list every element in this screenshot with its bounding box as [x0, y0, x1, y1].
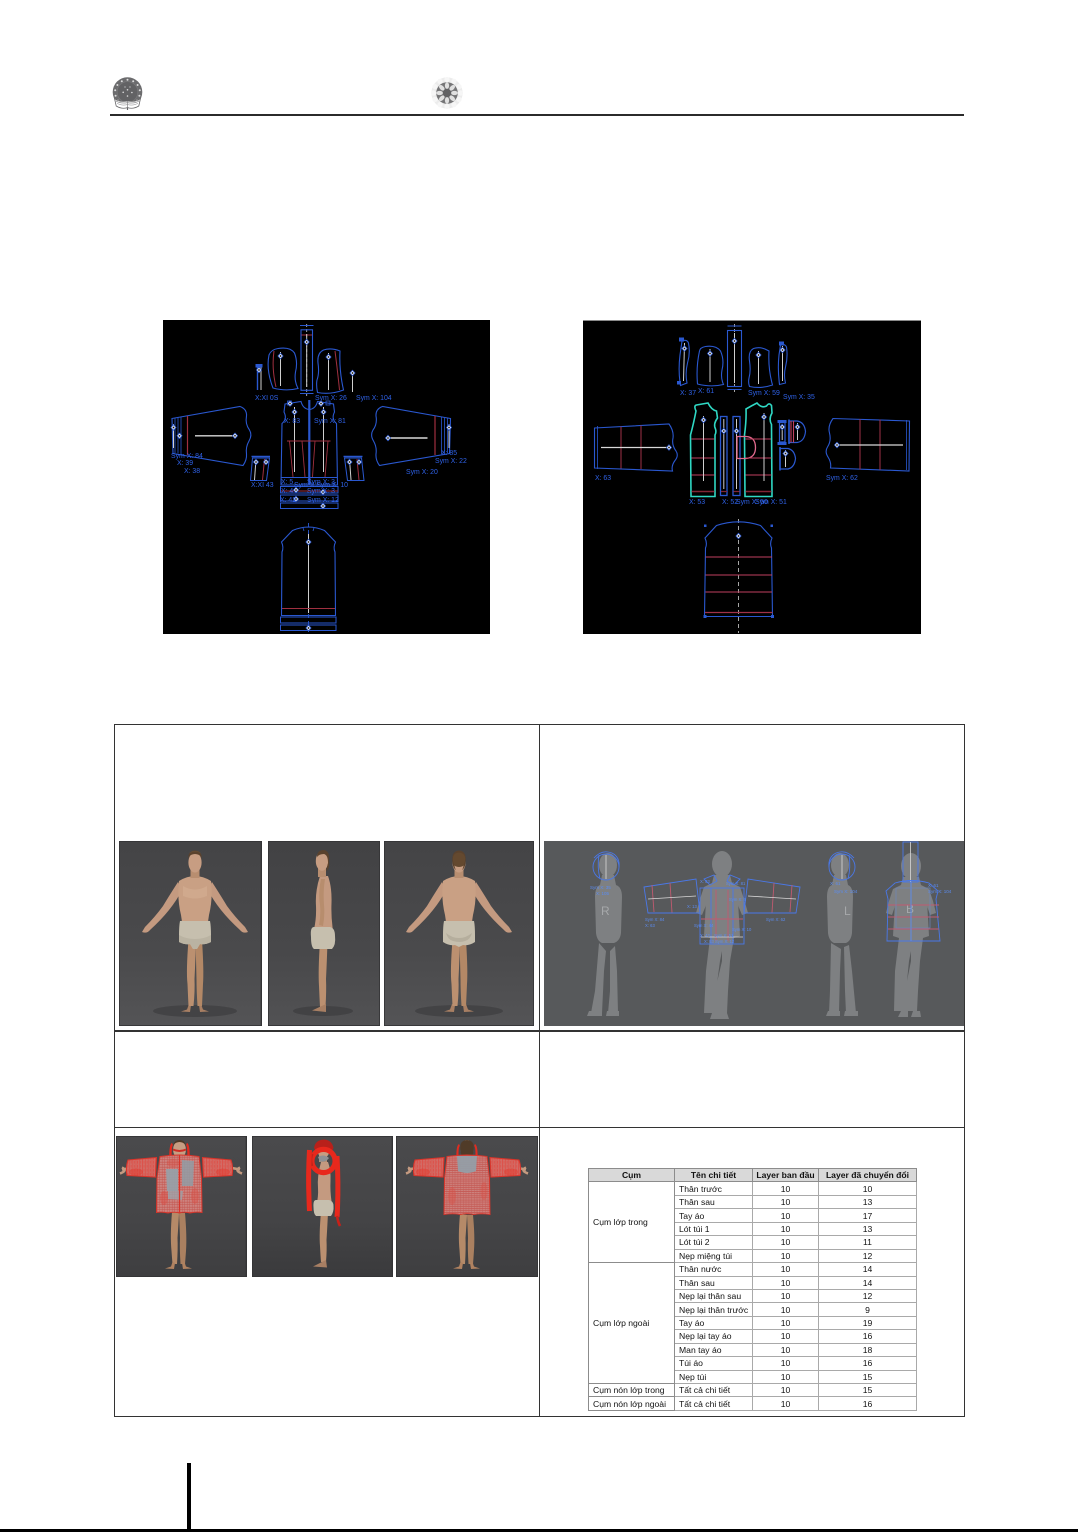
- svg-text:B: B: [906, 902, 914, 916]
- svg-text:Sym X: 44: Sym X: 44: [694, 923, 714, 928]
- svg-text:X: 63: X: 63: [645, 923, 655, 928]
- svg-text:Sym X: 35: Sym X: 35: [590, 885, 611, 890]
- svg-text:Sym X: 35: Sym X: 35: [783, 394, 815, 401]
- svg-text:X: 83: X: 83: [700, 879, 710, 884]
- svg-text:Sym X.Sym X: 10: Sym X.Sym X: 10: [294, 482, 348, 489]
- svg-text:X: 38: X: 38: [184, 468, 200, 475]
- svg-text:L: L: [844, 904, 851, 918]
- svg-text:X: 85: X: 85: [441, 450, 457, 457]
- svg-text:Sym X: 84: Sym X: 84: [645, 917, 665, 922]
- svg-text:Sym X: 20: Sym X: 20: [406, 469, 438, 476]
- svg-text:X: 37: X: 37: [680, 390, 696, 397]
- svg-text:Sym X: 59: Sym X: 59: [748, 390, 780, 397]
- svg-text:X: 61: X: 61: [698, 388, 714, 395]
- svg-text:Sym X: 62: Sym X: 62: [826, 475, 858, 482]
- svg-text:X: 53: X: 53: [689, 499, 705, 506]
- svg-text:X: 61: X: 61: [928, 883, 939, 888]
- svg-text:Sym X: 9: Sym X: 9: [729, 897, 747, 902]
- svg-text:X: 83: X: 83: [284, 418, 300, 425]
- svg-text:X: 61: X: 61: [830, 881, 841, 886]
- svg-text:X: 105: X: 105: [596, 891, 610, 896]
- svg-text:X: 42: X: 42: [700, 933, 710, 938]
- svg-text:X:XI 0S: X:XI 0S: [255, 395, 279, 402]
- svg-text:Sym X: 22: Sym X: 22: [435, 458, 467, 465]
- svg-text:Sym X: 81: Sym X: 81: [726, 881, 746, 886]
- svg-text:X: 63: X: 63: [595, 475, 611, 482]
- svg-text:Sym X: 51: Sym X: 51: [714, 933, 734, 938]
- svg-text:Sym X: 62: Sym X: 62: [766, 917, 786, 922]
- svg-text:X: 42: X: 42: [280, 497, 296, 504]
- svg-text:Sym X: 104: Sym X: 104: [834, 889, 858, 894]
- svg-text:Sym X: 51: Sym X: 51: [755, 499, 787, 506]
- svg-text:X: 4: X: 4: [281, 488, 293, 495]
- svg-text:X: 39: X: 39: [177, 460, 193, 467]
- svg-text:Sym X: 10: Sym X: 10: [732, 927, 752, 932]
- svg-text:Sym X: 26: Sym X: 26: [315, 395, 347, 402]
- svg-text:X:XI 43: X:XI 43: [251, 482, 274, 489]
- svg-text:Sym X: 3: Sym X: 3: [307, 488, 335, 495]
- svg-text:Sym X: 12: Sym X: 12: [307, 497, 339, 504]
- svg-text:Sym X: 104: Sym X: 104: [928, 889, 952, 894]
- svg-text:X: 13: X: 13: [687, 904, 697, 909]
- svg-text:R: R: [601, 904, 610, 918]
- svg-text:X: 5: X: 5: [281, 479, 293, 486]
- svg-text:Sym X: 84: Sym X: 84: [171, 453, 203, 460]
- svg-text:Sym X: 81: Sym X: 81: [314, 418, 346, 425]
- svg-text:X: 53 Sym X: 12: X: 53 Sym X: 12: [704, 939, 735, 944]
- svg-text:Sym X: 104: Sym X: 104: [356, 395, 392, 402]
